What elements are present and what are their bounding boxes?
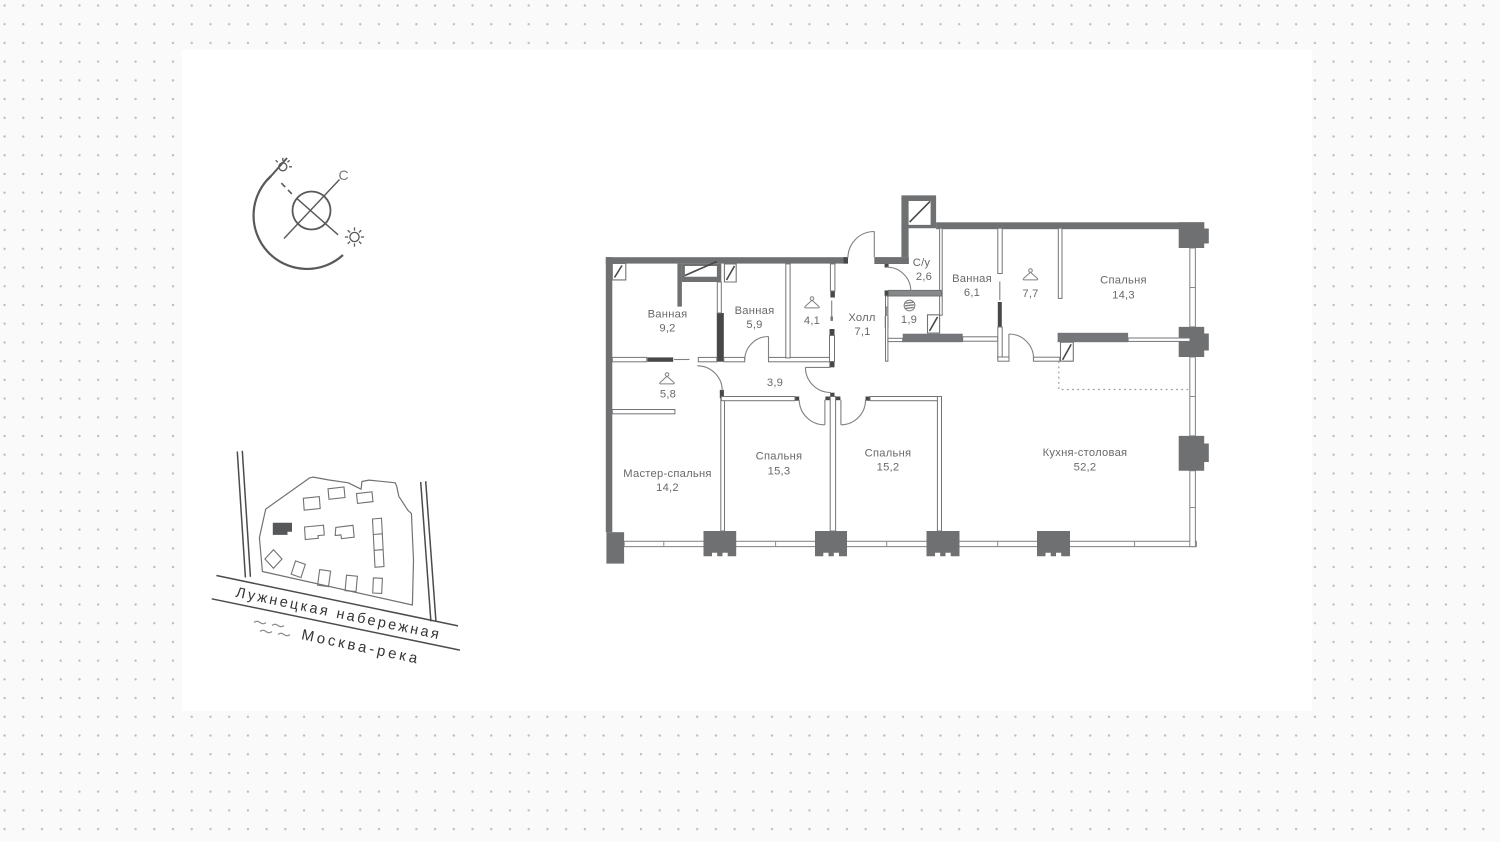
svg-text:7,1: 7,1 — [854, 326, 870, 338]
svg-text:2,6: 2,6 — [916, 271, 932, 283]
svg-text:C: C — [338, 167, 348, 183]
svg-text:15,3: 15,3 — [768, 466, 791, 478]
svg-text:4,1: 4,1 — [804, 315, 820, 327]
svg-text:С/у: С/у — [913, 257, 931, 269]
svg-text:Кухня-столовая: Кухня-столовая — [1043, 447, 1128, 459]
svg-text:Спальня: Спальня — [756, 451, 803, 463]
svg-text:5,9: 5,9 — [746, 319, 762, 331]
svg-text:Спальня: Спальня — [865, 448, 912, 460]
svg-text:52,2: 52,2 — [1074, 462, 1097, 474]
svg-text:Холл: Холл — [848, 312, 875, 324]
svg-text:14,3: 14,3 — [1112, 290, 1135, 302]
svg-text:Ванная: Ванная — [735, 305, 775, 317]
svg-text:Мастер-спальня: Мастер-спальня — [623, 468, 711, 480]
svg-text:15,2: 15,2 — [877, 462, 900, 474]
svg-text:6,1: 6,1 — [964, 287, 980, 299]
svg-text:3,9: 3,9 — [767, 377, 783, 389]
svg-text:9,2: 9,2 — [659, 323, 675, 335]
svg-text:Ванная: Ванная — [648, 309, 688, 321]
svg-text:Спальня: Спальня — [1100, 275, 1147, 287]
svg-text:7,7: 7,7 — [1022, 288, 1038, 300]
svg-text:Ванная: Ванная — [952, 273, 992, 285]
svg-text:14,2: 14,2 — [656, 482, 679, 494]
svg-text:5,8: 5,8 — [660, 389, 676, 401]
svg-text:1,9: 1,9 — [901, 314, 917, 326]
